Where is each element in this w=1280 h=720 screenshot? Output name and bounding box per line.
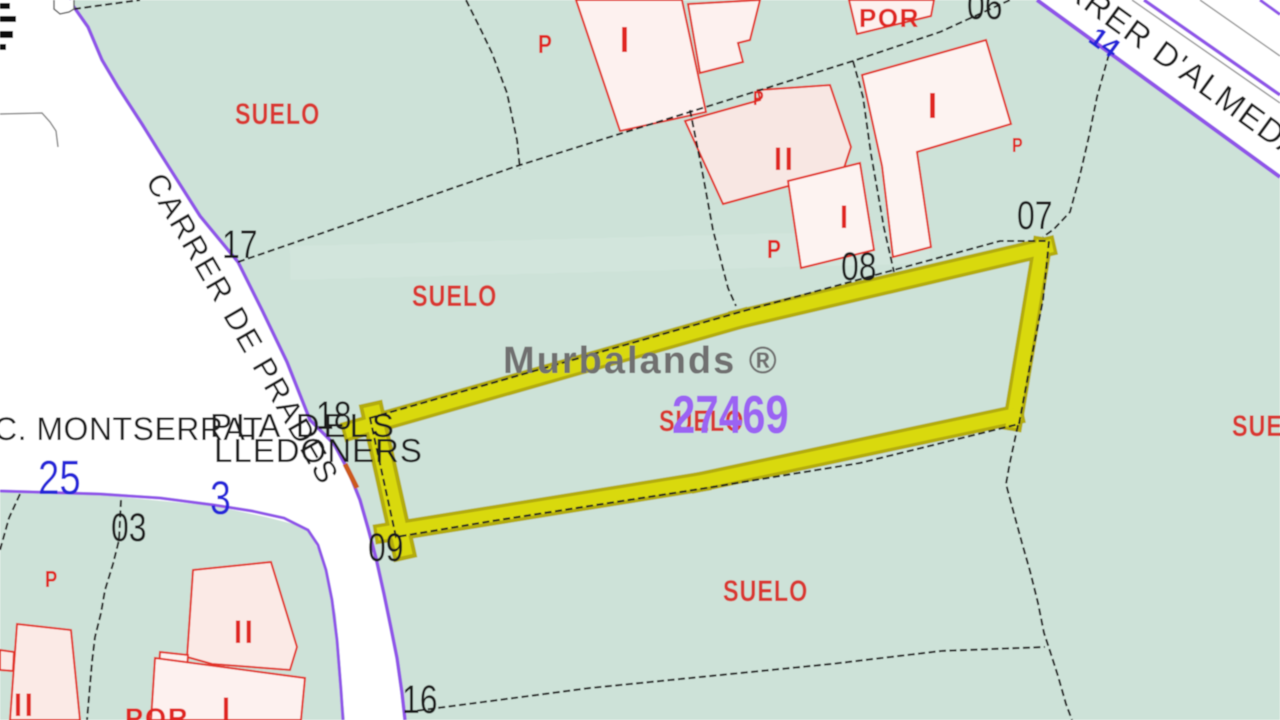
svg-text:P: P [538, 30, 552, 59]
svg-text:SUELO: SUELO [1232, 409, 1280, 442]
svg-text:07: 07 [1017, 193, 1053, 238]
svg-text:I: I [222, 692, 230, 720]
svg-text:09: 09 [368, 525, 404, 570]
svg-text:II: II [774, 142, 795, 178]
svg-text:P: P [1012, 134, 1023, 156]
svg-text:I: I [928, 86, 937, 126]
svg-text:P: P [767, 235, 781, 264]
svg-text:SUELO: SUELO [235, 97, 320, 130]
svg-text:SUELO: SUELO [412, 279, 497, 312]
svg-text:SUELO: SUELO [723, 574, 808, 607]
svg-text:Murbalands ®: Murbalands ® [503, 340, 779, 382]
svg-text:I: I [620, 20, 629, 60]
svg-text:25: 25 [38, 452, 81, 505]
svg-text:03: 03 [111, 505, 147, 550]
svg-text:17: 17 [222, 222, 258, 267]
svg-text:II: II [234, 615, 255, 651]
svg-text:POR: POR [125, 703, 190, 720]
svg-text:27469: 27469 [672, 386, 789, 445]
svg-text:I: I [840, 200, 848, 236]
svg-text:P: P [45, 567, 57, 592]
svg-text:3: 3 [210, 472, 231, 525]
svg-text:16: 16 [402, 677, 438, 720]
svg-text:POR: POR [859, 3, 920, 33]
svg-text:II: II [14, 688, 35, 720]
svg-text:06: 06 [967, 0, 1003, 28]
svg-text:08: 08 [841, 244, 877, 289]
svg-text:P: P [753, 87, 764, 109]
